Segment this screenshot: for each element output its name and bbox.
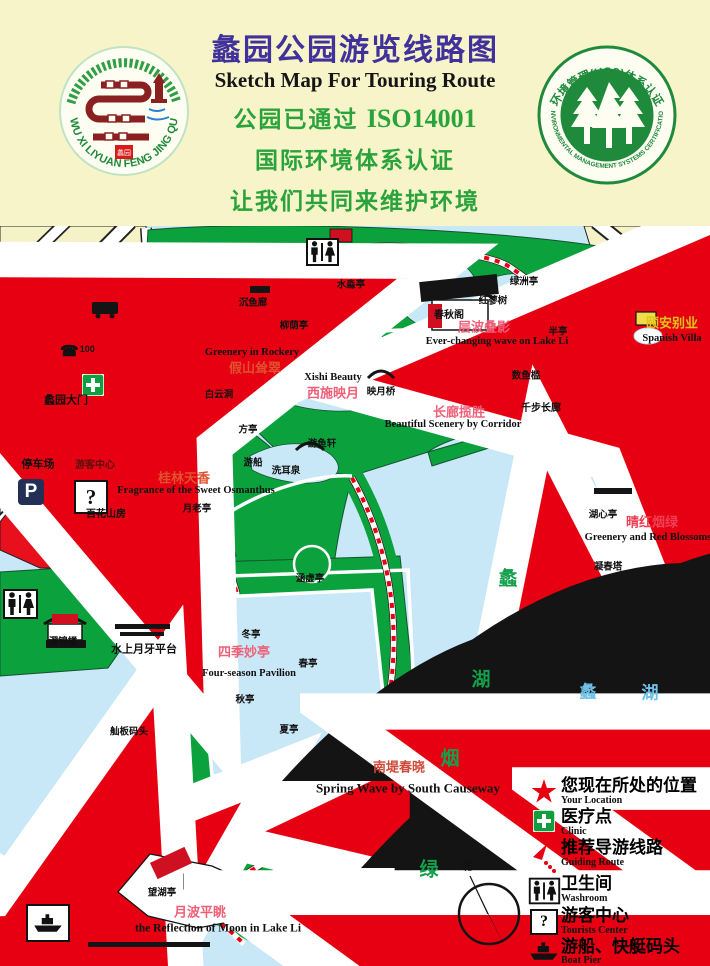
- lake-poem-char: 蠡: [498, 570, 517, 589]
- header: WU XI LIYUAN FENG JING QU 蠡园 蠡园公园游览线路图 S…: [0, 0, 710, 226]
- label-rockery-en: Greenery in Rockery: [205, 348, 299, 359]
- washroom-icon: [3, 589, 38, 619]
- legend-item-boat-pier: 游船、快艇码头 Boat Pier: [527, 938, 709, 966]
- label-red-knotweed: 红蓼树: [479, 296, 508, 306]
- washroom-icon: [306, 238, 339, 266]
- clinic-icon: [82, 374, 104, 396]
- park-map-page: WU XI LIYUAN FENG JING QU 蠡园 蠡园公园游览线路图 S…: [0, 0, 710, 966]
- label-thousand-step-corridor: 千步长廊: [521, 404, 561, 414]
- label-four-season-zh: 四季妙亭: [218, 646, 270, 659]
- legend-zh: 游客中心: [561, 907, 629, 925]
- legend-item-washroom: 卫生间 Washroom: [527, 875, 709, 905]
- ship-icon: [33, 912, 63, 934]
- label-sampan-pier: 舢板码头: [110, 727, 148, 737]
- label-yuelao-pavilion: 月老亭: [183, 504, 212, 514]
- man-icon: [309, 241, 320, 263]
- question-mark: ?: [86, 485, 97, 510]
- label-tourist-center: 游客中心: [75, 461, 115, 471]
- label-rockery-zh: 假山耸翠: [229, 362, 281, 375]
- legend: 您现在所处的位置 Your Location 医疗点 Clinic 推荐导游线路…: [527, 777, 709, 966]
- lake-poem-char: 绿: [419, 861, 438, 880]
- label-shuimiao-pavilion: 水淼亭: [337, 280, 366, 290]
- legend-item-tourist-center: ? 游客中心 Tourists Center: [527, 907, 709, 936]
- lake-name-char: 湖: [642, 685, 659, 702]
- label-osmanthus-zh: 桂林天香: [158, 472, 210, 485]
- route-arrow-icon: [530, 841, 558, 873]
- label-boat: 游船: [243, 458, 262, 468]
- cert-line-1-prefix: 公园已通过: [233, 106, 358, 132]
- lake-poem-char: 烟: [440, 750, 459, 769]
- label-white-cloud-cave: 白云洞: [205, 390, 234, 400]
- iso-code: ISO14001: [367, 104, 477, 133]
- legend-zh: 卫生间: [561, 875, 612, 893]
- label-main-gate: 蠡园大门: [44, 396, 88, 407]
- phone-number: 100: [80, 344, 95, 354]
- label-green-isle-pavilion: 绿洲亭: [510, 277, 539, 287]
- label-mid-lake-pavilion: 湖心亭: [589, 510, 618, 520]
- cert-line-2: 国际环境体系认证: [170, 141, 540, 175]
- label-spring-pavilion: 春亭: [298, 659, 317, 669]
- parking-icon: P: [18, 479, 44, 505]
- map: ☎ 100 P ? 蠡园大门 停车场 游客中心 百花山房: [0, 226, 710, 966]
- page-subtitle: Sketch Map For Touring Route: [170, 68, 540, 93]
- label-corridor-scenery-en: Beautiful Scenery by Corridor: [385, 420, 522, 431]
- label-half-pavilion: 半亭: [548, 327, 567, 337]
- legend-item-clinic: 医疗点 Clinic: [527, 808, 709, 837]
- label-winter-pavilion: 冬亭: [241, 630, 260, 640]
- cert-line-3: 让我们共同来维护环境: [170, 182, 540, 216]
- label-south-causeway-en: Spring Wave by South Causeway: [316, 782, 500, 795]
- woman-icon: [22, 592, 35, 616]
- legend-zh: 推荐导游线路: [561, 839, 663, 857]
- woman-icon: [545, 880, 556, 901]
- label-qinghong-en: Greenery and Red Blossoms: [585, 533, 710, 544]
- label-hanxu-pavilion: 涵虚亭: [296, 574, 325, 584]
- label-square-pavilion: 方亭: [238, 425, 257, 435]
- emergency-phone-icon: ☎ 100: [60, 344, 95, 359]
- legend-en: Boat Pier: [561, 955, 680, 966]
- legend-item-guiding-route: 推荐导游线路 Guiding Route: [527, 839, 709, 873]
- label-corridor-scenery-zh: 长廊揽胜: [433, 406, 485, 419]
- legend-zh: 您现在所处的位置: [561, 777, 697, 795]
- title-block: 蠡园公园游览线路图 Sketch Map For Touring Route 公…: [170, 34, 540, 216]
- label-south-causeway-zh: 南堤春晓: [373, 761, 425, 774]
- label-spanish-villa-en: Spanish Villa: [642, 334, 701, 345]
- label-spanish-villa-zh: 颐安别业: [646, 317, 698, 330]
- legend-en: Clinic: [561, 826, 612, 837]
- label-ningchun-pagoda: 凝春塔: [594, 562, 623, 572]
- label-moon-bridge: 映月桥: [367, 387, 396, 397]
- label-moon-reflection-zh: 月波平眺: [174, 906, 226, 919]
- legend-en: Washroom: [561, 893, 612, 904]
- clinic-icon: [533, 810, 555, 832]
- label-osmanthus-en: Fragrance of the Sweet Osmanthus: [117, 486, 274, 497]
- label-autumn-pavilion: 秋亭: [235, 695, 254, 705]
- legend-en: Guiding Route: [561, 857, 663, 868]
- label-willow-pavilion: 柳荫亭: [280, 321, 309, 331]
- label-wanghu-pavilion: 望湖亭: [148, 888, 177, 898]
- question-mark: ?: [540, 913, 548, 931]
- label-crescent-platform: 水上月牙平台: [111, 645, 177, 656]
- legend-en: Your Location: [561, 795, 697, 806]
- label-shuyu-rail: 数鱼槛: [512, 371, 541, 381]
- legend-item-your-location: 您现在所处的位置 Your Location: [527, 777, 709, 806]
- label-cengbo-en: Ever-changing wave on Lake Li: [426, 337, 569, 348]
- question-icon: ?: [530, 909, 558, 935]
- boat-pier-icon: [26, 904, 70, 942]
- lake-name-char: 蠡: [580, 684, 597, 701]
- label-cengbo-zh: 层波叠影: [458, 321, 510, 334]
- man-icon: [6, 592, 18, 616]
- legend-en: Tourists Center: [561, 925, 629, 936]
- label-four-season-en: Four-season Pavilion: [202, 669, 296, 680]
- washroom-icon: [529, 877, 560, 904]
- star-icon: [531, 779, 557, 805]
- cert-line-1: 公园已通过 ISO14001: [170, 100, 540, 134]
- seal-text: 蠡园: [117, 148, 131, 157]
- label-qinghong-zh: 晴红烟绿: [626, 516, 678, 529]
- woman-icon: [324, 241, 336, 263]
- label-xishi-zh: 西施映月: [307, 387, 359, 400]
- ship-icon: [529, 940, 559, 962]
- label-xier-spring: 洗耳泉: [272, 466, 301, 476]
- compass-north-label: 北: [462, 862, 473, 873]
- page-title: 蠡园公园游览线路图: [170, 34, 540, 67]
- lake-poem-char: 湖: [471, 671, 490, 690]
- label-zhuojin-tower: 濯锦楼: [49, 637, 78, 647]
- label-xishi-en: Xishi Beauty: [304, 373, 361, 384]
- label-parking: 停车场: [22, 460, 55, 471]
- parking-letter: P: [25, 481, 38, 503]
- legend-zh: 游船、快艇码头: [561, 938, 680, 956]
- label-baihua-house: 百花山房: [86, 510, 126, 520]
- label-chenyu-corridor: 沉鱼廊: [239, 298, 268, 308]
- label-youyu-hall: 游鱼轩: [308, 439, 337, 449]
- label-moon-reflection-en: the Reflection of Moon in Lake Li: [135, 923, 301, 935]
- legend-zh: 医疗点: [561, 808, 612, 826]
- label-summer-pavilion: 夏亭: [279, 725, 298, 735]
- man-icon: [531, 880, 541, 901]
- phone-icon: ☎: [60, 344, 79, 359]
- ucs-certification-logo: 环境管理(UCS)体系认证 ENVIRONMENTAL MANAGEMENT S…: [533, 40, 681, 190]
